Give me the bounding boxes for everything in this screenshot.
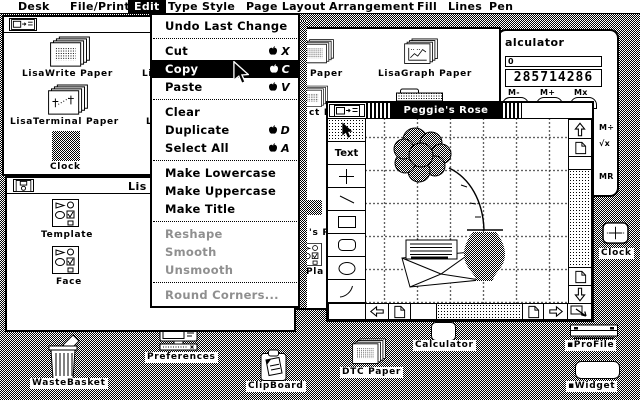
- calculator-key-m-times[interactable]: Mx: [574, 88, 588, 97]
- menu-item-duplicate[interactable]: Duplicate D: [152, 121, 298, 139]
- menu-file-print[interactable]: File/Print: [70, 0, 130, 13]
- crosshair-tool-icon: [338, 168, 355, 185]
- mouse-cursor: [232, 61, 249, 85]
- lisa-desktop: WasteBasket Preferences ClipBoard DTC Pa…: [0, 0, 640, 400]
- vertical-scroll-elevator[interactable]: [568, 156, 592, 170]
- scroll-left-button[interactable]: [365, 303, 389, 320]
- page-right-button[interactable]: [522, 303, 544, 320]
- clipboard-glyph-icon: [259, 349, 288, 382]
- lisagraph-paper-label: LisaGraph Paper: [378, 69, 472, 80]
- horizontal-scroll-track[interactable]: [436, 303, 523, 320]
- scroll-up-button[interactable]: [568, 119, 592, 139]
- template-label: Template: [41, 230, 93, 241]
- menu-item-make-lowercase[interactable]: Make Lowercase: [152, 164, 298, 182]
- calculator-desktop-icon[interactable]: [431, 322, 456, 341]
- menu-item-smooth: Smooth: [152, 243, 298, 261]
- menu-arrangement[interactable]: Arrangement: [329, 0, 414, 13]
- tool-line[interactable]: [328, 188, 365, 211]
- paper-stack-icon: [351, 337, 387, 367]
- folder-icon[interactable]: [396, 88, 444, 101]
- rounded-rectangle-tool-icon: [337, 238, 357, 252]
- clipboard-label: ClipBoard: [246, 381, 306, 392]
- tool-text[interactable]: Text: [328, 142, 365, 165]
- tool-rectangle[interactable]: [328, 211, 365, 234]
- vertical-scroll-track[interactable]: [568, 169, 592, 268]
- menu-item-reshape: Reshape: [152, 225, 298, 243]
- tool-pointer[interactable]: [328, 119, 365, 142]
- dtc-paper-label: DTC Paper: [340, 367, 403, 378]
- up-arrow-icon: [574, 121, 587, 137]
- left-arrow-icon: [369, 305, 385, 318]
- menu-item-cut[interactable]: Cut X: [152, 42, 298, 60]
- calculator-key-sqrt[interactable]: √x: [599, 139, 610, 148]
- menu-item-round-corners: Round Corners...: [152, 286, 298, 304]
- menu-separator: [152, 279, 298, 286]
- menu-separator: [152, 157, 298, 164]
- lisagraph-paper-icon[interactable]: [403, 37, 439, 67]
- window-control-icon: [11, 19, 35, 30]
- window-control-icon: [334, 105, 360, 117]
- clock-document-label: Clock: [50, 162, 81, 173]
- menu-item-select-all[interactable]: Select All A: [152, 139, 298, 157]
- clock-desktop-label: Clock: [599, 248, 634, 259]
- trash-can-icon: [46, 333, 90, 381]
- lisaterminal-paper-icon[interactable]: [46, 84, 90, 117]
- apple-key-icon: [268, 125, 278, 135]
- window-menu-tab[interactable]: [13, 179, 34, 192]
- tool-rounded-rectangle[interactable]: [328, 234, 365, 257]
- page-left-icon: [392, 305, 407, 319]
- template-icon[interactable]: [52, 199, 79, 227]
- apple-key-icon: [268, 82, 278, 92]
- window-menu-tab[interactable]: [329, 104, 365, 117]
- menu-fill[interactable]: Fill: [417, 0, 437, 13]
- hard-disk-icon: [570, 323, 618, 340]
- scrollbar-corner-cell: [328, 303, 366, 320]
- calculator-desktop-label: Calculator: [413, 340, 476, 351]
- preferences-label: Preferences: [145, 352, 218, 363]
- pointer-tool-icon: [341, 122, 353, 139]
- calculator-key-m-minus[interactable]: M-: [508, 88, 520, 97]
- titlebar-stripes[interactable]: [501, 103, 522, 118]
- horizontal-scroll-elevator[interactable]: [410, 303, 437, 320]
- clock-open-document-icon[interactable]: [52, 131, 80, 161]
- tool-arc[interactable]: [328, 280, 365, 303]
- calculator-key-m-plus[interactable]: M+: [540, 88, 555, 97]
- menu-item-paste[interactable]: Paste V: [152, 78, 298, 96]
- draw-window-title[interactable]: Peggie's Rose: [391, 103, 501, 118]
- page-left-button[interactable]: [388, 303, 411, 320]
- calculator-key-m-divide[interactable]: M÷: [599, 123, 614, 132]
- lisadraw-window: Peggie's Rose Text: [326, 101, 594, 322]
- rectangle-tool-icon: [337, 215, 357, 229]
- scroll-right-button[interactable]: [543, 303, 568, 320]
- widget-label: ▪Widget: [566, 381, 617, 392]
- clipboard-icon[interactable]: [259, 349, 288, 382]
- face-label: Face: [56, 277, 82, 288]
- page-right-icon: [526, 305, 541, 319]
- page-down-button[interactable]: [568, 267, 592, 286]
- page-up-icon: [573, 141, 588, 155]
- wastebasket-icon[interactable]: [46, 333, 90, 381]
- right-arrow-icon: [548, 305, 564, 318]
- menu-item-make-uppercase[interactable]: Make Uppercase: [152, 182, 298, 200]
- window-menu-tab[interactable]: [9, 18, 37, 31]
- drawing-canvas[interactable]: [366, 119, 568, 303]
- lisawrite-paper-icon[interactable]: [48, 36, 92, 69]
- apple-key-icon: [269, 64, 279, 74]
- template-document-label-fragment: Pla: [306, 267, 324, 278]
- wastebasket-label: WasteBasket: [30, 378, 108, 389]
- menu-type-style[interactable]: Type Style: [168, 0, 235, 13]
- menu-separator: [152, 218, 298, 225]
- profile-label: ▪ProFile: [565, 340, 616, 351]
- ellipse-tool-icon: [337, 261, 357, 276]
- calculator-window-title[interactable]: alculator: [505, 36, 564, 49]
- menu-lines[interactable]: Lines: [448, 0, 482, 13]
- apple-key-icon: [268, 143, 278, 153]
- menu-item-undo[interactable]: Undo Last Change: [152, 17, 298, 35]
- diskette-icon: [15, 180, 32, 192]
- widget-drive-icon[interactable]: [575, 361, 620, 379]
- page-up-button[interactable]: [568, 138, 592, 157]
- calculator-key-m-recall[interactable]: MR: [599, 172, 614, 181]
- clock-desktop-icon[interactable]: [602, 222, 629, 245]
- clock-face-icon: [602, 222, 629, 245]
- menu-bar: Desk File/Print Edit Type Style Page Lay…: [0, 0, 640, 14]
- arc-tool-icon: [338, 284, 356, 299]
- profile-drive-icon[interactable]: [570, 323, 618, 340]
- menu-separator: [152, 96, 298, 103]
- calculator-memory-display: 0: [505, 56, 602, 67]
- resize-icon: [569, 304, 591, 319]
- down-arrow-icon: [574, 287, 587, 303]
- stationery-paper-label-fragment: Paper: [310, 69, 343, 80]
- menu-item-clear[interactable]: Clear: [152, 103, 298, 121]
- lisaterminal-paper-label: LisaTerminal Paper: [10, 117, 119, 128]
- menu-pen[interactable]: Pen: [489, 0, 513, 13]
- face-icon[interactable]: [52, 246, 79, 274]
- edit-menu: Undo Last Change Cut X Copy C Paste V Cl…: [150, 13, 300, 308]
- menu-page-layout[interactable]: Page Layout: [246, 0, 326, 13]
- calculator-main-display: 285714286: [505, 69, 602, 87]
- scroll-down-button[interactable]: [568, 285, 592, 304]
- menu-item-copy[interactable]: Copy C: [152, 60, 298, 78]
- apple-key-icon: [268, 46, 278, 56]
- line-tool-icon: [338, 192, 356, 206]
- titlebar-stripes[interactable]: [366, 103, 391, 118]
- menu-separator: [152, 35, 298, 42]
- dtc-paper-icon[interactable]: [351, 337, 387, 367]
- tool-ellipse[interactable]: [328, 257, 365, 280]
- menu-item-unsmooth: Unsmooth: [152, 261, 298, 279]
- tool-crosshair[interactable]: [328, 165, 365, 188]
- lisawrite-paper-label: LisaWrite Paper: [22, 69, 113, 80]
- grow-resize-box[interactable]: [567, 303, 592, 320]
- menu-edit[interactable]: Edit: [128, 0, 166, 13]
- menu-item-make-title[interactable]: Make Title: [152, 200, 298, 218]
- disk-window-title: Lis: [128, 180, 147, 193]
- menu-desk[interactable]: Desk: [18, 0, 50, 13]
- page-down-icon: [573, 270, 588, 284]
- rose-drawing: [366, 119, 568, 303]
